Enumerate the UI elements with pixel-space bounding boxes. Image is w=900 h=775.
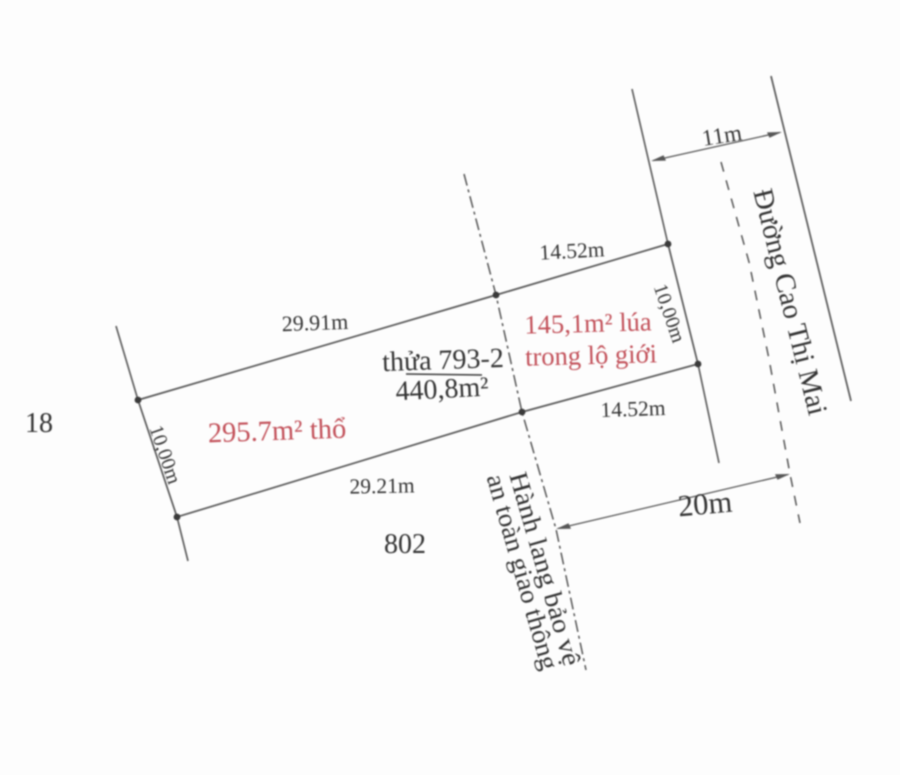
svg-text:Đường Cao Thị Mai: Đường Cao Thị Mai [746, 186, 832, 419]
svg-text:11m: 11m [700, 120, 744, 151]
svg-text:802: 802 [384, 529, 426, 560]
svg-text:145,1m² lúa: 145,1m² lúa [524, 306, 652, 339]
svg-text:10,00m: 10,00m [649, 281, 690, 346]
svg-text:29.21m: 29.21m [349, 473, 415, 498]
svg-text:295.7m² thổ: 295.7m² thổ [207, 414, 346, 450]
svg-text:14.52m: 14.52m [600, 396, 666, 422]
svg-text:14.52m: 14.52m [539, 237, 606, 264]
svg-text:10,00m: 10,00m [145, 422, 186, 487]
svg-text:29.91m: 29.91m [281, 309, 348, 336]
svg-text:trong lộ giới: trong lộ giới [525, 338, 658, 371]
svg-text:440,8m²: 440,8m² [395, 372, 490, 408]
svg-text:18: 18 [25, 408, 53, 439]
svg-text:20m: 20m [677, 485, 734, 524]
